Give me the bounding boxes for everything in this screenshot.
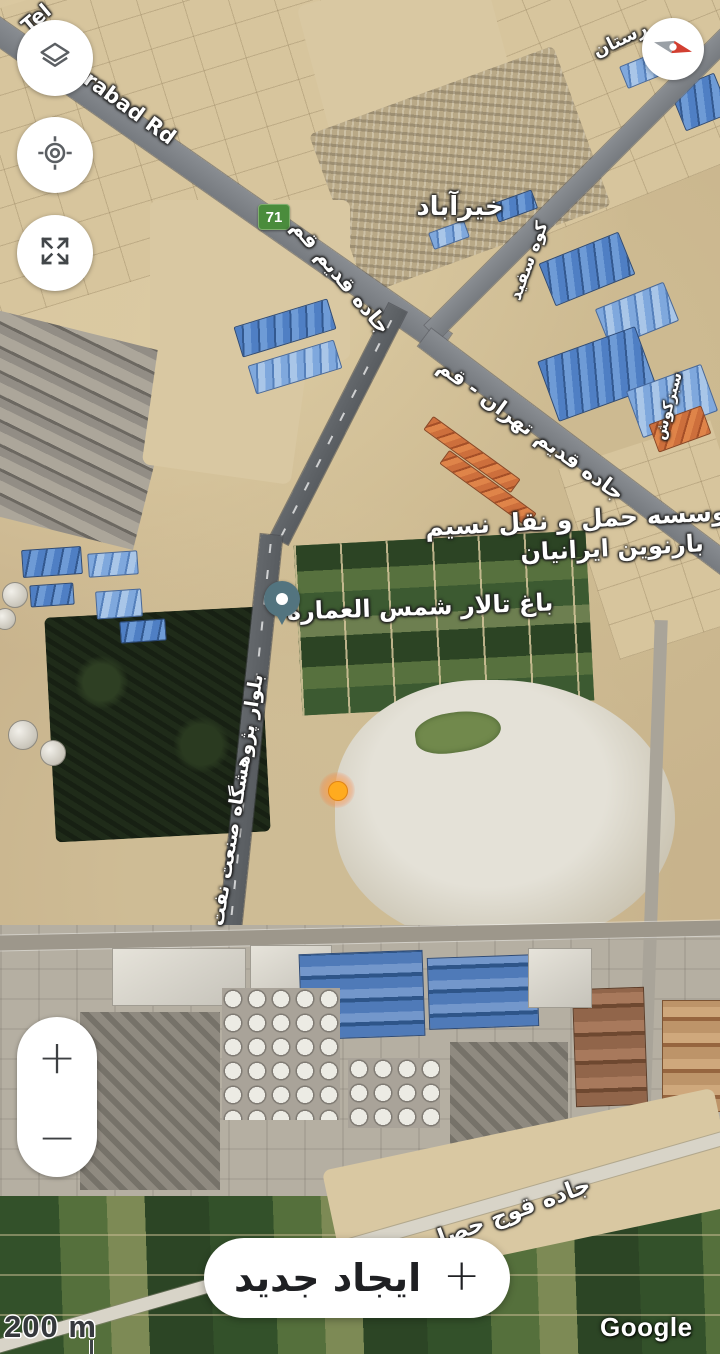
road-label-qadim-tehran-qom: جاده قدیم تهران - قم (433, 354, 629, 505)
zoom-control: + − (17, 1017, 97, 1177)
my-location-button[interactable] (17, 117, 93, 193)
compass-needle-icon (650, 24, 696, 75)
town-label-kheyrabad[interactable]: خیرآباد (416, 192, 503, 222)
fullscreen-button[interactable] (17, 215, 93, 291)
place-pin-marker[interactable] (264, 581, 300, 629)
fullscreen-expand-icon (37, 233, 73, 274)
poi-label-sabz-kush[interactable]: سبزکوش (650, 370, 685, 441)
route-71-shield: 71 (258, 204, 290, 230)
map-scale-tick (90, 1340, 93, 1354)
poi-label-garden-hall[interactable]: باغ تالار شمس العماره (286, 588, 554, 625)
maps-screen: Tel orabad Rd 71 خیرآباد جاده قدیم قم کو… (0, 0, 720, 1354)
plus-icon: + (443, 1254, 480, 1298)
layers-button[interactable] (17, 20, 93, 96)
map-labels-layer: Tel orabad Rd 71 خیرآباد جاده قدیم قم کو… (0, 0, 720, 1354)
place-pin-tail (276, 614, 288, 625)
layers-icon (38, 39, 72, 78)
create-new-label: ایجاد جدید (234, 1256, 421, 1300)
poi-label-kuh-sefid[interactable]: کوه سفید (506, 219, 553, 303)
map-scale-label: 200 m (4, 1309, 97, 1345)
create-new-button[interactable]: + ایجاد جدید (204, 1238, 510, 1318)
my-location-icon (37, 135, 73, 176)
label-partial-rostan: رستان (590, 18, 651, 62)
compass-button[interactable] (642, 18, 704, 80)
selected-point-dot (328, 781, 348, 801)
place-pin-dot (276, 593, 288, 605)
zoom-out-button[interactable]: − (17, 1097, 97, 1177)
google-watermark: Google (600, 1312, 693, 1343)
road-label-blvd-research-oil: بلوار پژوهشگاه صنعت نفت (206, 673, 268, 928)
zoom-in-button[interactable]: + (17, 1017, 97, 1097)
road-label-qadim-qom: جاده قدیم قم (286, 215, 395, 339)
selected-point-marker[interactable] (319, 772, 355, 808)
